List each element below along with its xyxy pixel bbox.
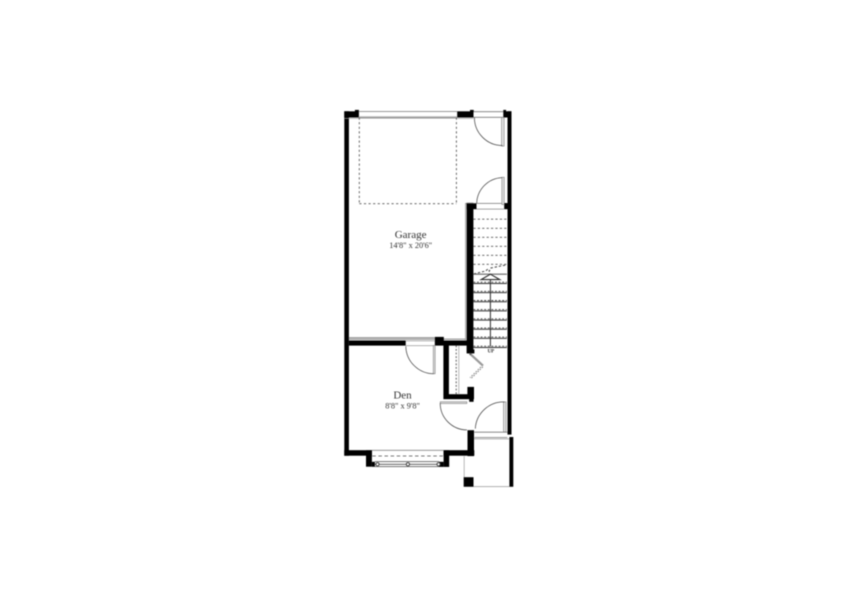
svg-text:Den: Den	[393, 390, 412, 402]
svg-text:14'8" x 20'6": 14'8" x 20'6"	[389, 241, 432, 250]
svg-text:UP: UP	[488, 348, 495, 354]
svg-text:8'8" x 9'8": 8'8" x 9'8"	[385, 401, 420, 410]
svg-text:Garage: Garage	[395, 229, 427, 241]
